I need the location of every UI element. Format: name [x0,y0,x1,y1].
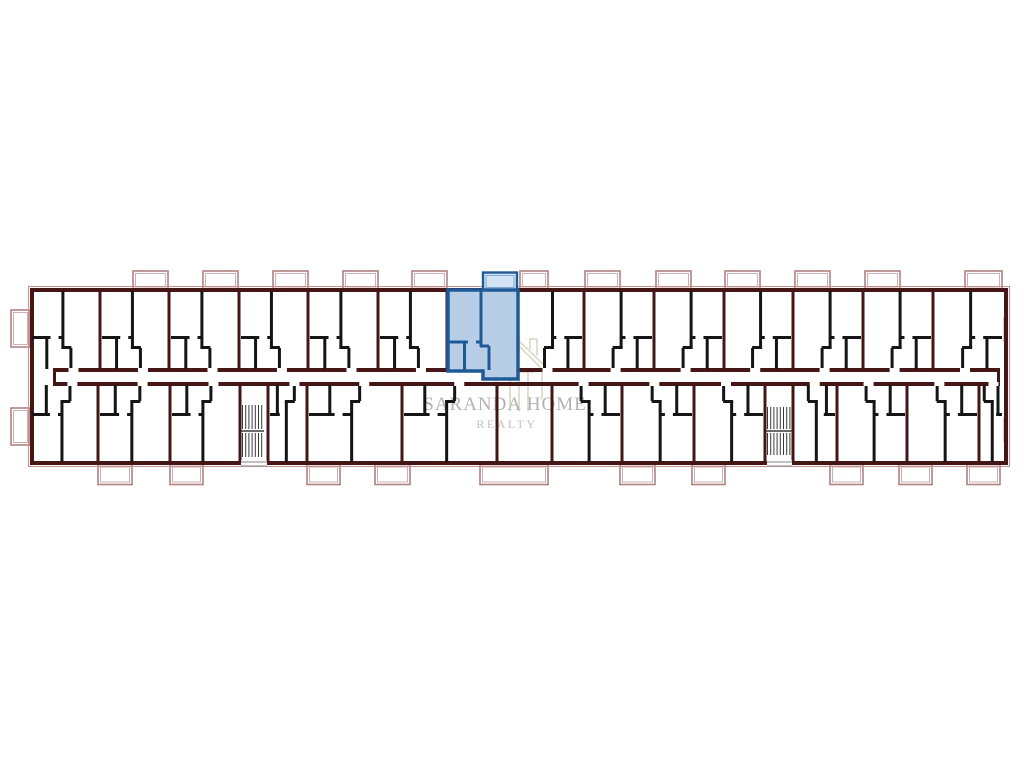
balcony-outline-inner [14,411,28,443]
door-opening [277,368,287,372]
interior-wall [201,401,204,462]
interior-wall [130,401,133,462]
interior-wall [185,385,188,415]
interior-wall [543,348,546,369]
door-opening [681,368,691,372]
unit-partition-wall [653,288,656,372]
interior-wall [690,291,693,348]
interior-wall [865,385,868,401]
balcony-outline-inner [415,274,445,288]
interior-wall [589,413,593,416]
balcony-outline-inner [14,313,28,345]
interior-wall [60,401,63,462]
balcony-outline-inner [902,467,930,482]
entrance-gap [241,461,267,467]
unit-partition-wall [792,288,795,372]
interior-wall [138,385,141,401]
unit-partition-wall [267,382,270,465]
unit-partition-wall [239,382,242,465]
door-opening [69,368,79,372]
balcony-outline-inner [588,274,618,288]
outer-wall-bottom [30,461,1008,465]
interior-wall [751,348,754,369]
door-opening [542,368,552,372]
balcony-outline-inner [173,467,201,482]
unit-partition-wall [693,382,696,465]
interior-wall [323,338,326,369]
highlighted-unit[interactable] [448,273,518,380]
door-opening [138,368,148,372]
interior-wall [730,401,733,462]
balcony-outline-inner [378,467,408,482]
interior-wall [278,348,281,369]
unit-partition-wall [306,382,309,465]
interior-wall [732,413,737,416]
door-opening [721,382,731,386]
interior-wall [553,336,557,339]
balcony-outline-inner [970,467,998,482]
balcony-outline-inner [833,467,861,482]
interior-wall [438,413,447,416]
unit-partition-wall [621,382,624,465]
interior-wall [328,385,331,415]
floorplan-page: SARANDA HOME REALTY [0,0,1024,768]
interior-wall [393,338,396,369]
unit-partition-wall [764,382,767,465]
unit-partition-wall [978,382,981,465]
unit-partition-wall [583,288,586,372]
interior-wall [337,336,341,339]
floor-plan-svg: SARANDA HOME REALTY [0,0,1024,768]
door-opening [209,382,219,386]
interior-wall [969,291,972,348]
interior-wall [339,291,342,348]
unit-partition-wall [99,288,102,372]
interior-wall [997,385,1000,415]
door-opening [934,382,944,386]
interior-wall [114,385,117,415]
interior-wall [58,413,62,416]
unit-partition-wall [792,382,795,465]
unit-partition-wall [401,382,404,465]
interior-wall [267,336,271,339]
balcony-outline-inner [483,467,546,482]
interior-wall [199,413,203,416]
door-opening [890,368,900,372]
interior-wall [900,336,904,339]
balcony-outline-inner [623,467,653,482]
interior-wall [830,336,834,339]
interior-wall [254,338,257,369]
interior-wall [409,291,412,348]
door-opening [649,382,659,386]
interior-wall [845,338,848,369]
interior-wall [691,336,695,339]
door-opening [611,368,621,372]
interior-wall [829,291,832,348]
interior-wall [660,413,665,416]
interior-wall [566,338,569,369]
door-opening [750,368,760,372]
door-opening [454,382,464,386]
interior-wall [960,385,963,415]
unit-partition-wall [307,288,310,372]
interior-wall [675,385,678,415]
interior-wall [889,385,892,415]
door-opening [960,368,970,372]
balcony-outline-inner [523,274,546,288]
unit-partition-wall [906,382,909,465]
interior-wall [128,336,132,339]
interior-wall [985,338,988,369]
interior-wall [343,413,352,416]
interior-wall [612,348,615,369]
unit-partition-wall [169,382,172,465]
unit-partition-wall [377,288,380,372]
interior-wall [874,413,878,416]
entrance-gap [767,461,792,467]
balcony-outline-inner [695,467,723,482]
unit-partition-wall [932,288,935,372]
interior-wall [115,338,118,369]
interior-wall [971,336,976,339]
interior-wall [873,401,876,462]
interior-wall [61,291,64,348]
balcony-outline-inner [346,274,376,288]
unit-partition-wall [551,382,554,465]
unit-partition-wall [238,288,241,372]
interior-wall [270,291,273,348]
interior-wall [69,348,72,369]
balcony-outline-inner [136,274,166,288]
interior-wall [276,385,279,415]
interior-wall [131,291,134,348]
door-opening [347,368,357,372]
unit-partition-wall [723,288,726,372]
corridor-wall [56,382,997,386]
interior-wall [807,385,810,401]
balcony-outline-inner [798,274,828,288]
balcony-outline-inner [310,467,338,482]
interior-wall [722,385,725,401]
door-opening [138,382,148,386]
interior-wall [944,401,947,462]
interior-wall [453,385,456,401]
door-opening [810,382,820,386]
interior-wall [891,348,894,369]
corridor-wall-end [53,368,56,386]
interior-wall [991,401,994,462]
interior-wall [620,291,623,348]
interior-wall [621,336,625,339]
interior-wall [899,291,902,348]
watermark-subtitle: REALTY [476,417,537,431]
door-opening [289,382,299,386]
interior-wall [406,336,410,339]
interior-wall [417,348,420,369]
door-opening [67,382,77,386]
interior-wall [961,348,964,369]
interior-wall [706,338,709,369]
interior-wall [682,348,685,369]
interior-wall [45,338,48,369]
interior-wall [347,348,350,369]
balcony-outline-inner [728,274,758,288]
interior-wall [821,348,824,369]
interior-wall [358,385,361,401]
interior-wall [604,385,607,415]
balcony-outline-inner [101,467,130,482]
unit-partition-wall [168,288,171,372]
balcony-outline-inner [659,274,689,288]
interior-wall [983,385,986,401]
balcony-outline-inner [276,274,306,288]
corridor-wall [56,368,997,372]
interior-wall [200,291,203,348]
unit-partition-wall [836,382,839,465]
interior-wall [815,401,818,462]
interior-wall [580,385,583,401]
door-opening [579,382,589,386]
door-opening [208,368,218,372]
door-opening [864,382,874,386]
interior-wall [423,385,426,415]
balcony-outline-inner [968,274,1000,288]
interior-wall [659,401,662,462]
balcony-outline-inner [206,274,236,288]
interior-wall [746,385,749,415]
interior-wall [588,401,591,462]
interior-wall [184,338,187,369]
interior-wall [825,385,828,415]
highlighted-unit-outline [448,290,518,379]
interior-wall [636,338,639,369]
interior-wall [651,385,654,401]
interior-wall [445,401,448,462]
door-opening [820,368,830,372]
interior-wall [761,336,765,339]
interior-wall [127,413,132,416]
interior-wall [209,385,212,401]
interior-wall [198,336,202,339]
door-opening [989,382,999,386]
interior-wall [285,401,288,462]
interior-wall [945,413,950,416]
interior-wall [350,401,353,462]
interior-wall [208,348,211,369]
interior-wall [139,348,142,369]
interior-wall [775,338,778,369]
balcony-outline-inner [868,274,898,288]
unit-partition-wall [496,382,499,465]
unit-partition-wall [862,288,865,372]
interior-wall [293,385,296,401]
interior-wall [59,336,63,339]
interior-wall [936,385,939,401]
unit-partition-wall [97,382,100,465]
interior-wall [68,385,71,401]
interior-wall [759,291,762,348]
outer-wall-left [30,288,34,465]
interior-wall [915,338,918,369]
interior-wall [551,291,554,348]
door-opening [416,368,426,372]
outer-wall-right [1004,288,1008,465]
door-opening [359,382,369,386]
interior-wall [45,385,48,415]
